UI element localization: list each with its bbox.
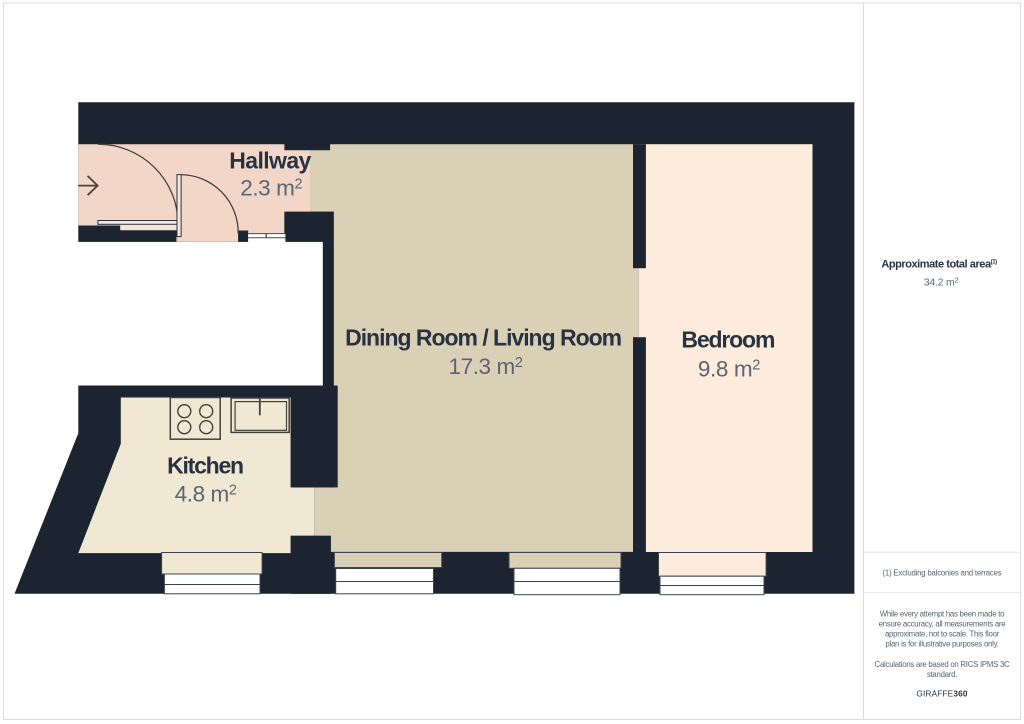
svg-text:2.3 m2: 2.3 m2 [240, 176, 302, 201]
svg-text:plan is for illustrative purpo: plan is for illustrative purposes only. [885, 639, 998, 648]
svg-text:9.8 m2: 9.8 m2 [698, 356, 760, 381]
svg-text:GIRAFFE360: GIRAFFE360 [916, 690, 967, 699]
svg-text:4.8 m2: 4.8 m2 [175, 481, 237, 506]
svg-text:approximate, not to scale. Thi: approximate, not to scale. This floor [885, 629, 1000, 638]
svg-text:Approximate total area(1): Approximate total area(1) [881, 258, 997, 270]
svg-text:Calculations are based on RICS: Calculations are based on RICS IPMS 3C [875, 660, 1010, 669]
svg-text:ensure accuracy, all measureme: ensure accuracy, all measurements are [879, 620, 1006, 629]
svg-text:(1) Excluding balconies and te: (1) Excluding balconies and terraces [883, 569, 1002, 578]
svg-text:standard.: standard. [927, 670, 957, 679]
svg-text:17.3 m2: 17.3 m2 [448, 354, 522, 379]
svg-text:Kitchen: Kitchen [167, 452, 244, 478]
svg-text:Hallway: Hallway [229, 147, 311, 173]
svg-text:While every attempt has been m: While every attempt has been made to [880, 610, 1005, 619]
svg-text:Dining Room / Living Room: Dining Room / Living Room [345, 325, 622, 351]
svg-text:34.2 m2: 34.2 m2 [924, 276, 959, 288]
svg-text:Bedroom: Bedroom [681, 326, 775, 352]
